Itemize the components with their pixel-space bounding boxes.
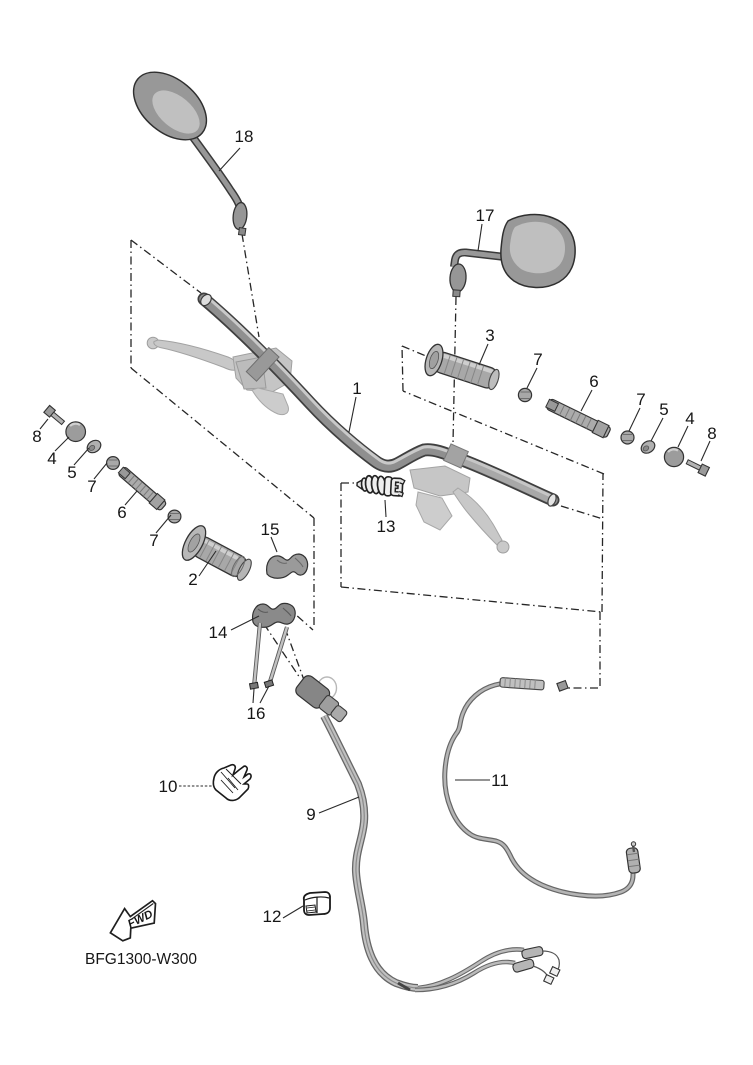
svg-text:7: 7	[636, 390, 645, 409]
svg-text:2: 2	[188, 570, 197, 589]
svg-text:5: 5	[67, 463, 76, 482]
svg-text:6: 6	[117, 503, 126, 522]
svg-text:11: 11	[491, 771, 509, 790]
svg-text:5: 5	[659, 400, 668, 419]
svg-text:BFG1300-W300: BFG1300-W300	[85, 951, 197, 968]
svg-text:6: 6	[589, 372, 598, 391]
svg-text:7: 7	[149, 531, 158, 550]
svg-text:12: 12	[263, 907, 282, 926]
svg-text:16: 16	[247, 704, 266, 723]
svg-text:7: 7	[87, 477, 96, 496]
svg-text:9: 9	[306, 805, 315, 824]
svg-text:7: 7	[533, 350, 542, 369]
svg-text:10: 10	[159, 777, 178, 796]
svg-text:1: 1	[352, 379, 361, 398]
svg-text:14: 14	[209, 623, 228, 642]
svg-text:3: 3	[485, 326, 494, 345]
svg-text:4: 4	[685, 409, 694, 428]
svg-text:13: 13	[377, 517, 396, 536]
svg-text:17: 17	[476, 206, 495, 225]
svg-text:15: 15	[261, 520, 280, 539]
svg-text:18: 18	[235, 127, 254, 146]
svg-text:8: 8	[32, 427, 41, 446]
svg-text:4: 4	[47, 449, 56, 468]
svg-text:8: 8	[707, 424, 716, 443]
